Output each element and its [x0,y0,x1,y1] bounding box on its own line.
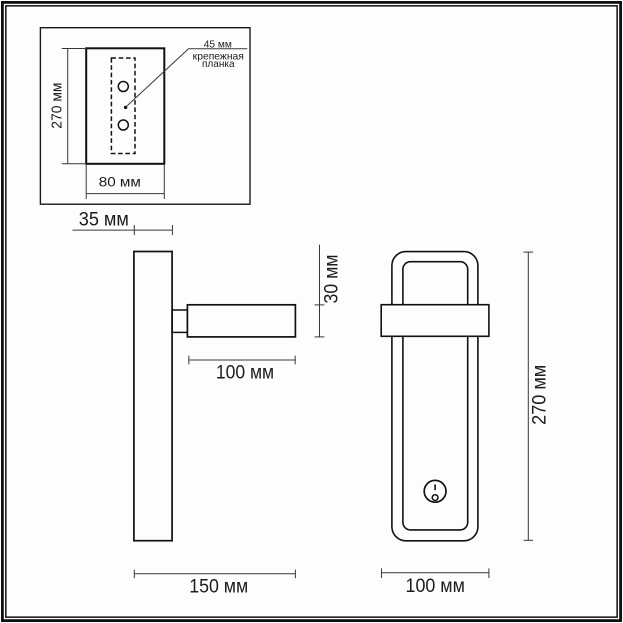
svg-text:270 мм: 270 мм [49,82,65,128]
svg-text:30 мм: 30 мм [321,255,342,304]
svg-text:80 мм: 80 мм [99,175,141,191]
svg-text:100 мм: 100 мм [216,363,274,384]
svg-text:150 мм: 150 мм [189,577,248,598]
svg-text:35 мм: 35 мм [79,210,129,231]
svg-text:270 мм: 270 мм [530,365,551,425]
svg-text:45 мм: 45 мм [204,38,232,50]
svg-text:100 мм: 100 мм [406,576,465,597]
svg-text:планка: планка [202,59,235,70]
